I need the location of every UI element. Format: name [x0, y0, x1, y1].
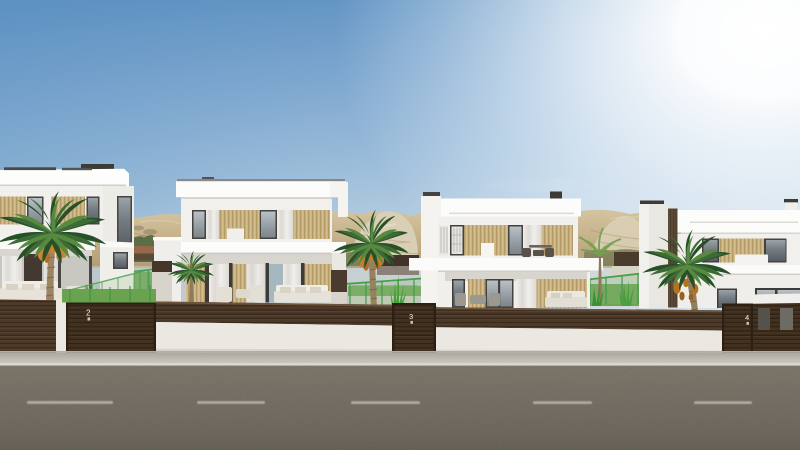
svg-text:4: 4: [745, 313, 749, 322]
svg-text:2: 2: [86, 309, 91, 318]
svg-text:3: 3: [409, 312, 413, 321]
